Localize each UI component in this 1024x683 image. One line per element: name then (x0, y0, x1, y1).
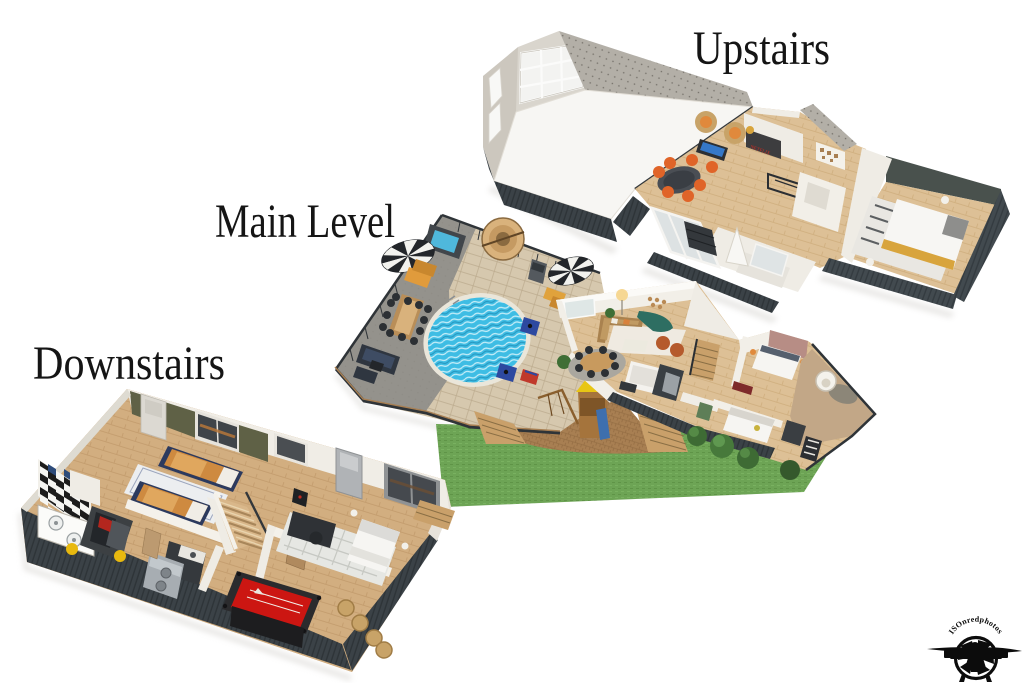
svg-text:Main Level: Main Level (215, 195, 395, 248)
svg-text:Downstairs: Downstairs (33, 337, 225, 390)
svg-text:Upstairs: Upstairs (693, 22, 830, 75)
